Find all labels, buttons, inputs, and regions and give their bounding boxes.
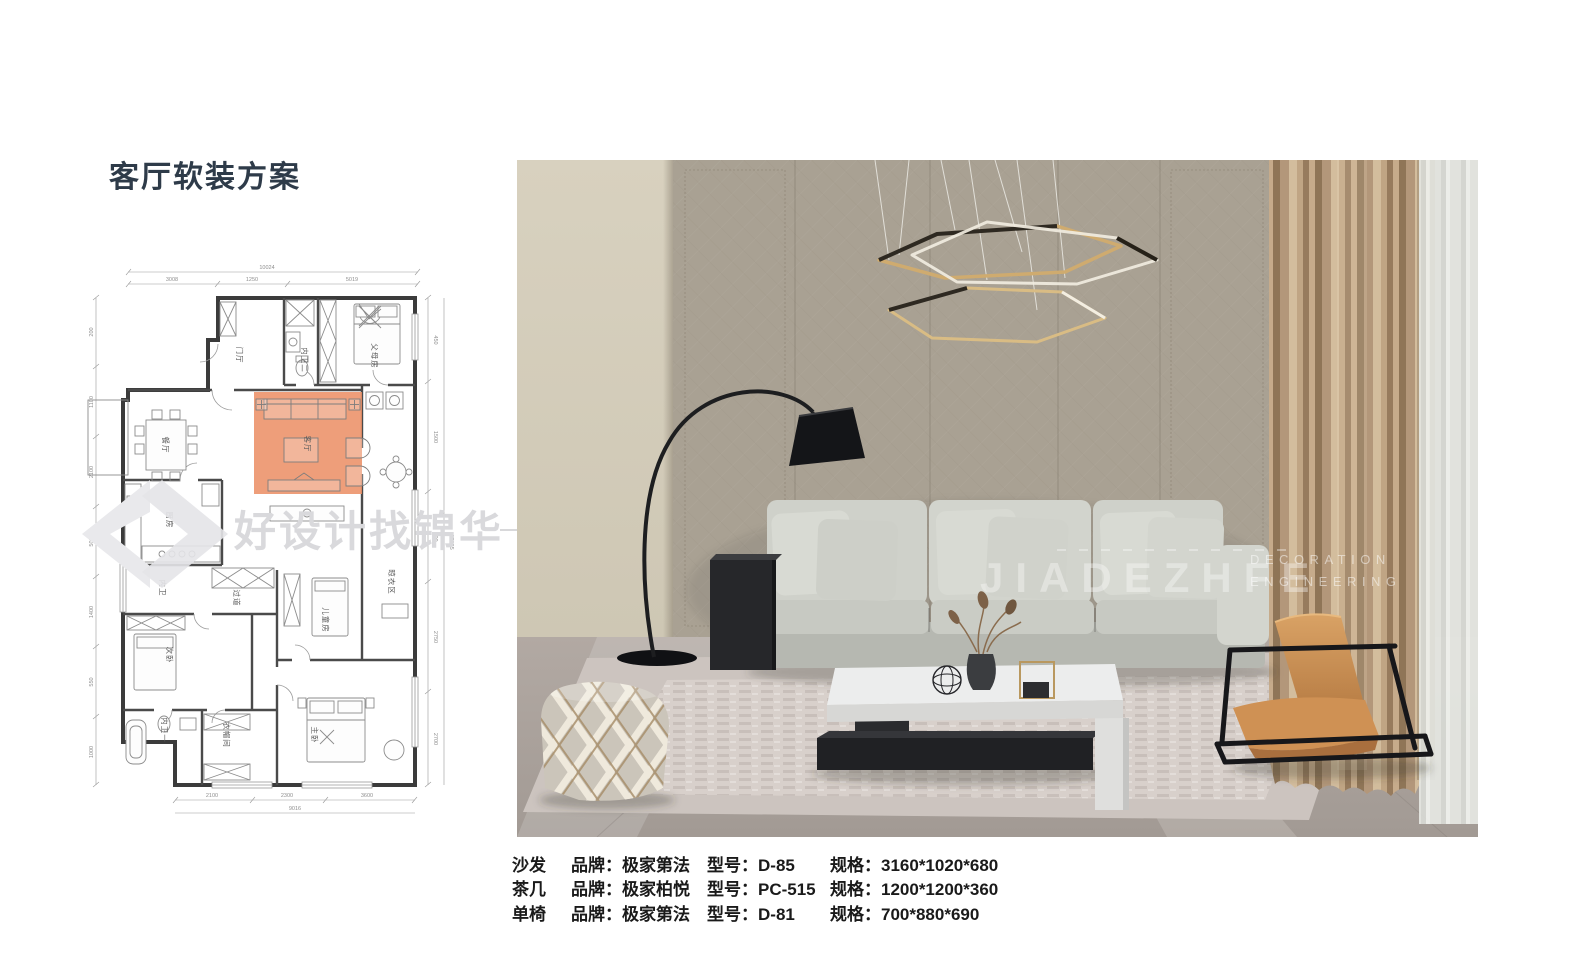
size-value: 1200*1200*360 — [881, 880, 998, 899]
room-label: 儿童房 — [321, 607, 331, 633]
svg-text:9016: 9016 — [289, 806, 301, 812]
spec-item: 茶几 — [512, 875, 571, 900]
svg-text:3008: 3008 — [166, 277, 178, 283]
spec-row-coffee-table: 茶几 品牌：极家柏悦 型号：PC-515 规格：1200*1200*360 — [512, 876, 1072, 901]
svg-text:1400: 1400 — [89, 606, 95, 618]
svg-text:1500: 1500 — [432, 431, 438, 443]
living-room-rendering: JIADEZHFE DECORATION ENGINEERING — [517, 160, 1478, 837]
dim-top: 10024 3008 1250 5019 — [126, 265, 420, 287]
room-label: 门厅 — [235, 347, 244, 364]
svg-text:2300: 2300 — [281, 793, 293, 799]
room-label: 晾衣区 — [387, 569, 397, 595]
room-label: 父母房 — [370, 343, 380, 369]
spec-row-chair: 单椅 品牌：极家第法 型号：D-81 规格：700*880*690 — [512, 900, 1072, 925]
model-value: D-81 — [758, 905, 795, 924]
wallpaper-edge-shadow — [663, 160, 673, 637]
model-label: 型号： — [707, 905, 758, 924]
svg-text:2100: 2100 — [206, 793, 218, 799]
svg-text:2100: 2100 — [89, 466, 95, 478]
svg-text:5019: 5019 — [346, 277, 358, 283]
room-label: 餐厅 — [161, 437, 170, 454]
dim-left: 200 1100 2100 500 1400 550 1000 — [89, 295, 99, 787]
outer-walls — [123, 298, 415, 785]
svg-text:500: 500 — [89, 537, 95, 546]
room-label: 内卫 — [158, 580, 168, 597]
side-cabinet — [710, 554, 782, 670]
sheer-curtain — [1419, 160, 1478, 824]
dim-right: 450 1500 600 2750 2700 17195 — [425, 295, 454, 787]
svg-text:600: 600 — [432, 532, 438, 541]
brand-value: 极家柏悦 — [622, 880, 690, 899]
size-label: 规格： — [830, 856, 881, 875]
svg-text:450: 450 — [432, 335, 438, 344]
svg-text:1100: 1100 — [89, 396, 95, 408]
svg-text:3600: 3600 — [361, 793, 373, 799]
size-label: 规格： — [830, 880, 881, 899]
svg-text:1250: 1250 — [246, 277, 258, 283]
svg-text:2750: 2750 — [432, 631, 438, 643]
page-title: 客厅软装方案 — [109, 152, 301, 196]
model-value: D-85 — [758, 856, 795, 875]
size-label: 规格： — [830, 905, 881, 924]
design-board-page: 客厅软装方案 10024 3008 1250 5019 200 1100 210… — [0, 0, 1590, 971]
brand-value: 极家第法 — [622, 905, 690, 924]
room-label: 内卫一 — [160, 717, 170, 743]
model-label: 型号： — [707, 880, 758, 899]
svg-text:550: 550 — [89, 677, 95, 686]
room-label: 厨房 — [165, 512, 175, 529]
brand-label: 品牌： — [571, 905, 622, 924]
room-label: 次卧 — [165, 647, 175, 664]
spec-item: 单椅 — [512, 900, 571, 925]
watermark-en-line1: DECORATION — [1250, 552, 1391, 567]
size-value: 3160*1020*680 — [881, 856, 998, 875]
brand-label: 品牌： — [571, 880, 622, 899]
room-label-living: 客厅 — [303, 436, 313, 453]
size-value: 700*880*690 — [881, 905, 979, 924]
spec-row-sofa: 沙发 品牌：极家第法 型号：D-85 规格：3160*1020*680 — [512, 851, 1072, 876]
room-label: 主卧 — [310, 727, 320, 744]
room-label: 衣帽间 — [222, 722, 232, 748]
svg-text:1000: 1000 — [89, 746, 95, 758]
svg-text:2700: 2700 — [432, 733, 438, 745]
spec-list: 沙发 品牌：极家第法 型号：D-85 规格：3160*1020*680 茶几 品… — [512, 851, 1072, 925]
room-label: 内卫二 — [300, 347, 310, 373]
svg-text:200: 200 — [89, 327, 95, 336]
model-label: 型号： — [707, 856, 758, 875]
wallpaper-panel — [517, 160, 673, 637]
watermark-en-line2: ENGINEERING — [1250, 574, 1402, 589]
model-value: PC-515 — [758, 880, 816, 899]
spec-item: 沙发 — [512, 851, 571, 876]
floor-plan: 10024 3008 1250 5019 200 1100 2100 500 1… — [62, 252, 472, 832]
dim-bottom: 2100 2300 3600 9016 — [173, 793, 417, 813]
svg-text:10024: 10024 — [259, 265, 274, 271]
floor-plan-svg: 10024 3008 1250 5019 200 1100 2100 500 1… — [62, 252, 472, 832]
brand-label: 品牌： — [571, 856, 622, 875]
brand-value: 极家第法 — [622, 856, 690, 875]
svg-text:17195: 17195 — [448, 534, 454, 549]
room-label: 过道 — [232, 590, 242, 607]
